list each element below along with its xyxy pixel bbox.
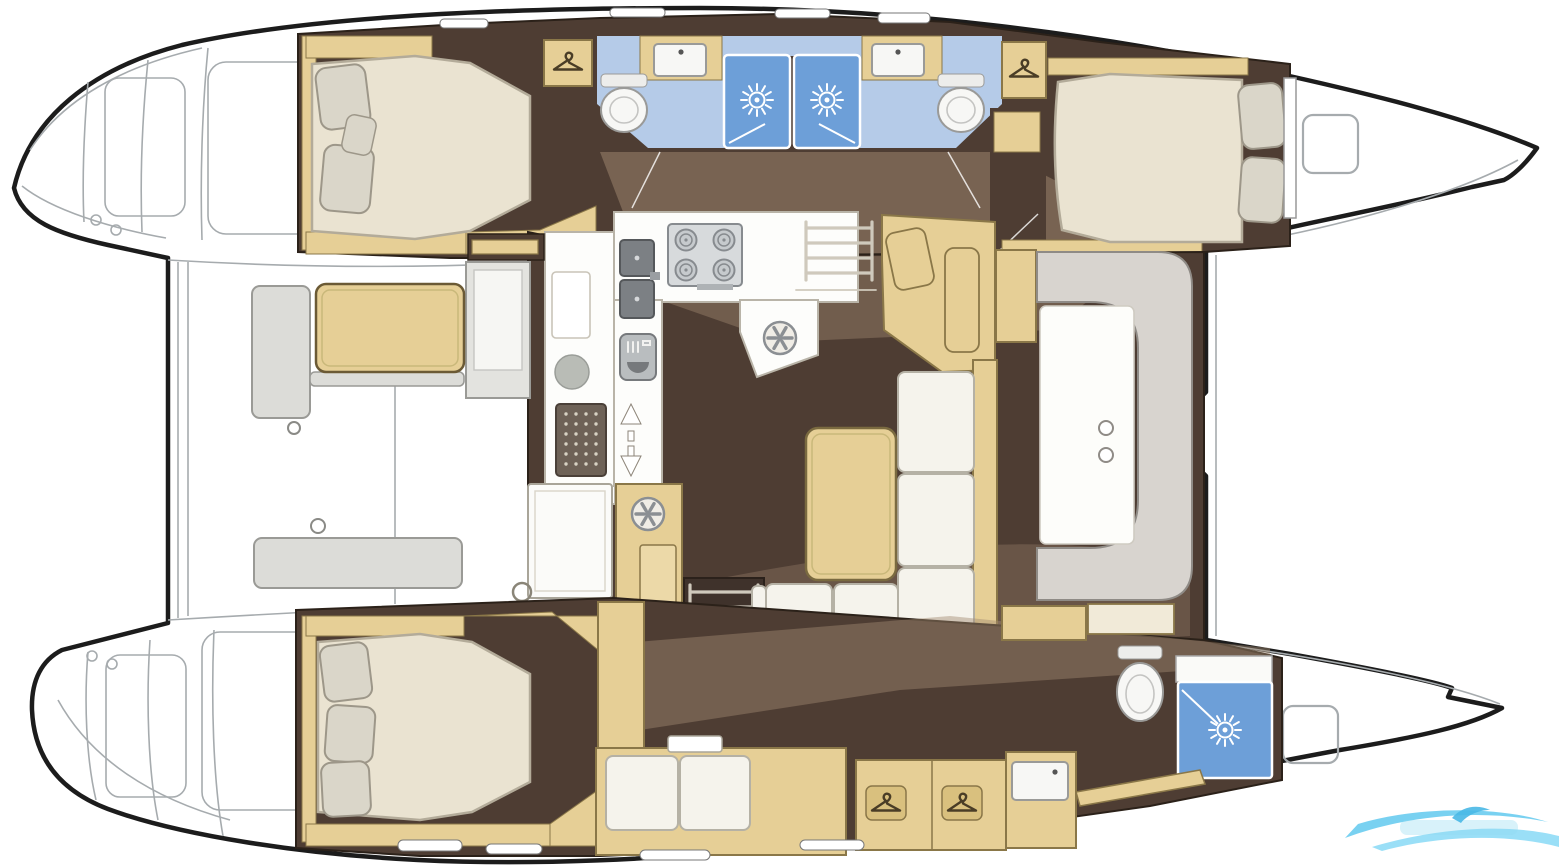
pillow xyxy=(1238,157,1286,224)
cabinet xyxy=(306,36,432,58)
toilet xyxy=(1117,646,1163,721)
wardrobe-column xyxy=(598,602,644,748)
vanity xyxy=(1002,606,1086,640)
bathroom-sink xyxy=(872,44,924,76)
bathroom-floor xyxy=(724,36,860,56)
cockpit-bench xyxy=(310,372,464,386)
bathroom-sink xyxy=(654,44,706,76)
cupholder xyxy=(1099,448,1113,462)
cabinet xyxy=(302,616,316,842)
sofa-cushion xyxy=(898,474,974,566)
cabinet xyxy=(994,112,1040,152)
sofa-backrest xyxy=(973,360,997,652)
stbd-hull-interior xyxy=(296,598,1282,860)
ring-fitting xyxy=(288,422,300,434)
faucet xyxy=(678,49,683,54)
wardrobes xyxy=(856,760,1006,850)
galley-sink xyxy=(620,240,660,318)
toilet xyxy=(938,74,984,132)
ring-fitting xyxy=(311,519,325,533)
side-table xyxy=(668,736,722,752)
cabinet xyxy=(306,616,464,636)
pillow xyxy=(1237,82,1286,150)
floorplan-page xyxy=(0,0,1560,865)
fridge-unit xyxy=(513,484,612,601)
cabinet xyxy=(1048,58,1248,75)
pillow xyxy=(321,761,372,817)
sofa-cushion xyxy=(898,372,974,472)
cabinet xyxy=(1088,604,1174,634)
burner-icon xyxy=(676,230,697,251)
cutting-board xyxy=(552,272,590,338)
cupholder xyxy=(1099,421,1113,435)
settee-cushion xyxy=(606,756,678,830)
bulkhead xyxy=(1284,78,1296,218)
catamaran-floorplan xyxy=(0,0,1560,865)
burner-icon xyxy=(714,260,735,281)
wave-logo-watermark xyxy=(1345,807,1559,851)
pillow xyxy=(324,704,376,763)
burner-icon xyxy=(714,230,735,251)
cockpit-table xyxy=(316,284,464,372)
vent-wheel-icon xyxy=(632,498,664,530)
oven-icon xyxy=(620,334,656,380)
vent-wheel-icon xyxy=(764,322,796,354)
burner-icon xyxy=(676,260,697,281)
settee-table xyxy=(1040,306,1134,544)
stove xyxy=(668,224,742,290)
faucet xyxy=(895,49,900,54)
toilet xyxy=(601,74,647,132)
cockpit-bench xyxy=(254,538,462,588)
port-bathrooms xyxy=(597,36,1002,148)
double-bed xyxy=(1055,74,1242,242)
cabinet xyxy=(996,250,1036,342)
corridor-sink-counter xyxy=(1006,752,1076,848)
settee-cushion xyxy=(680,756,750,830)
pillow xyxy=(319,641,373,702)
cockpit-bench xyxy=(252,286,310,418)
salon-table xyxy=(806,428,896,580)
floor-grate xyxy=(556,404,606,476)
round-basin xyxy=(555,355,589,389)
shower-surround xyxy=(1176,656,1272,682)
